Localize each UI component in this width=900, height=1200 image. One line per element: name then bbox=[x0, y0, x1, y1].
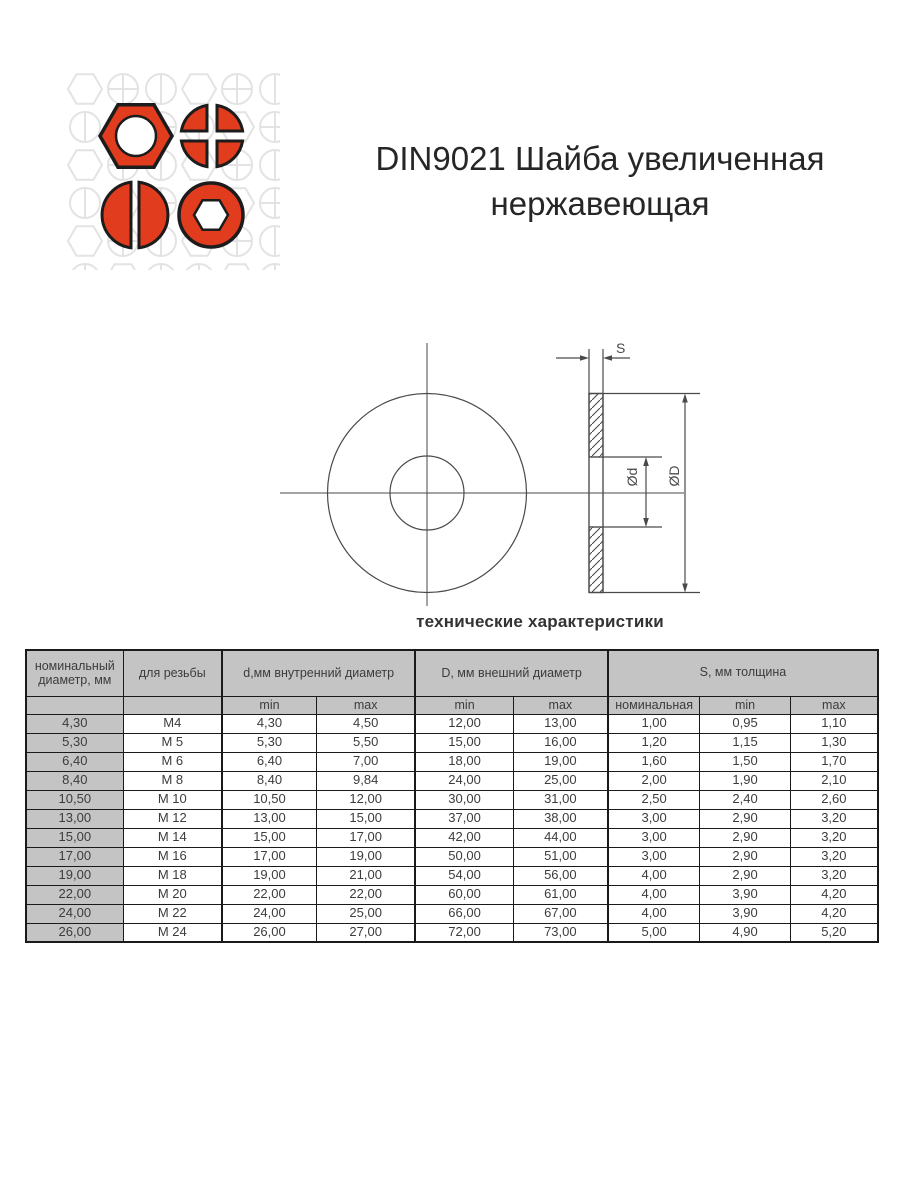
table-cell: 19,00 bbox=[222, 866, 317, 885]
table-cell: 22,00 bbox=[26, 885, 123, 904]
table-cell: 2,90 bbox=[700, 809, 790, 828]
header-empty-cell bbox=[123, 696, 222, 714]
table-row: 13,00M 1213,0015,0037,0038,003,002,903,2… bbox=[26, 809, 878, 828]
header-empty-cell bbox=[26, 696, 123, 714]
brand-logo bbox=[66, 70, 280, 270]
table-cell: 4,00 bbox=[608, 885, 700, 904]
table-cell: 13,00 bbox=[26, 809, 123, 828]
table-cell: 6,40 bbox=[222, 752, 317, 771]
d-arrow-top bbox=[643, 457, 649, 466]
table-cell: 2,40 bbox=[700, 790, 790, 809]
product-title-line2: нержавеющая bbox=[320, 181, 880, 226]
table-cell: 3,20 bbox=[790, 828, 878, 847]
table-cell: 3,20 bbox=[790, 847, 878, 866]
table-cell: 1,30 bbox=[790, 733, 878, 752]
header-d-max: max bbox=[317, 696, 416, 714]
table-cell: 3,20 bbox=[790, 809, 878, 828]
d-arrow-bottom bbox=[643, 518, 649, 527]
header-S-nominal: номинальная bbox=[608, 696, 700, 714]
table-cell: 4,00 bbox=[608, 866, 700, 885]
header-outer-diameter-group: D, мм внешний диаметр bbox=[415, 650, 608, 696]
spec-table-container: номинальный диаметр, мм для резьбы d,мм … bbox=[25, 649, 879, 943]
product-title-line1: DIN9021 Шайба увеличенная bbox=[320, 136, 880, 181]
table-cell: 2,50 bbox=[608, 790, 700, 809]
spec-table-body: 4,30M44,304,5012,0013,001,000,951,105,30… bbox=[26, 714, 878, 942]
washer-drawing: S Ød ØD bbox=[270, 330, 710, 615]
table-cell: 10,50 bbox=[26, 790, 123, 809]
header-S-max: max bbox=[790, 696, 878, 714]
table-cell: 1,60 bbox=[608, 752, 700, 771]
product-title: DIN9021 Шайба увеличенная нержавеющая bbox=[320, 136, 880, 226]
table-cell: 19,00 bbox=[513, 752, 608, 771]
table-cell: 19,00 bbox=[317, 847, 416, 866]
table-cell: 31,00 bbox=[513, 790, 608, 809]
table-cell: 12,00 bbox=[415, 714, 513, 733]
table-cell: 26,00 bbox=[26, 923, 123, 942]
table-cell: 15,00 bbox=[415, 733, 513, 752]
hex-nut-icon bbox=[100, 105, 172, 167]
table-cell: 56,00 bbox=[513, 866, 608, 885]
header-D-max: max bbox=[513, 696, 608, 714]
table-cell: 21,00 bbox=[317, 866, 416, 885]
table-row: 6,40M 66,407,0018,0019,001,601,501,70 bbox=[26, 752, 878, 771]
header-inner-diameter-group: d,мм внутренний диаметр bbox=[222, 650, 415, 696]
table-row: 19,00M 1819,0021,0054,0056,004,002,903,2… bbox=[26, 866, 878, 885]
table-cell: 15,00 bbox=[222, 828, 317, 847]
page: DIN9021 Шайба увеличенная нержавеющая bbox=[0, 0, 900, 1200]
table-cell: 4,30 bbox=[26, 714, 123, 733]
table-cell: 15,00 bbox=[317, 809, 416, 828]
table-cell: 24,00 bbox=[222, 904, 317, 923]
table-cell: 19,00 bbox=[26, 866, 123, 885]
section-hatch-top bbox=[589, 394, 603, 458]
table-cell: 24,00 bbox=[415, 771, 513, 790]
table-cell: 1,10 bbox=[790, 714, 878, 733]
table-cell: 16,00 bbox=[513, 733, 608, 752]
table-row: 5,30M 55,305,5015,0016,001,201,151,30 bbox=[26, 733, 878, 752]
table-cell: 5,30 bbox=[222, 733, 317, 752]
table-cell: 24,00 bbox=[26, 904, 123, 923]
table-cell: 60,00 bbox=[415, 885, 513, 904]
table-cell: 1,90 bbox=[700, 771, 790, 790]
table-cell: 3,00 bbox=[608, 828, 700, 847]
table-cell: 18,00 bbox=[415, 752, 513, 771]
table-cell: 0,95 bbox=[700, 714, 790, 733]
table-cell: 3,20 bbox=[790, 866, 878, 885]
table-cell: 3,90 bbox=[700, 885, 790, 904]
table-cell: 2,90 bbox=[700, 866, 790, 885]
header-thread: для резьбы bbox=[123, 650, 222, 696]
table-cell: 67,00 bbox=[513, 904, 608, 923]
table-cell: 22,00 bbox=[317, 885, 416, 904]
table-cell: M 24 bbox=[123, 923, 222, 942]
header-d-min: min bbox=[222, 696, 317, 714]
table-cell: 3,00 bbox=[608, 809, 700, 828]
table-cell: 38,00 bbox=[513, 809, 608, 828]
header-S-min: min bbox=[700, 696, 790, 714]
table-cell: 2,10 bbox=[790, 771, 878, 790]
table-cell: 22,00 bbox=[222, 885, 317, 904]
table-cell: 12,00 bbox=[317, 790, 416, 809]
outer-diameter-dimension-label: ØD bbox=[666, 466, 682, 487]
table-cell: 5,50 bbox=[317, 733, 416, 752]
D-arrow-bottom bbox=[682, 584, 688, 593]
table-cell: 8,40 bbox=[26, 771, 123, 790]
table-cell: 2,00 bbox=[608, 771, 700, 790]
table-cell: 72,00 bbox=[415, 923, 513, 942]
table-cell: 17,00 bbox=[317, 828, 416, 847]
table-cell: 44,00 bbox=[513, 828, 608, 847]
table-cell: 3,90 bbox=[700, 904, 790, 923]
table-cell: 6,40 bbox=[26, 752, 123, 771]
table-cell: 5,20 bbox=[790, 923, 878, 942]
table-cell: 4,00 bbox=[608, 904, 700, 923]
table-row: 10,50M 1010,5012,0030,0031,002,502,402,6… bbox=[26, 790, 878, 809]
table-cell: M 6 bbox=[123, 752, 222, 771]
table-cell: 25,00 bbox=[513, 771, 608, 790]
inner-diameter-dimension-label: Ød bbox=[624, 468, 640, 487]
technical-drawing: S Ød ØD bbox=[270, 330, 710, 615]
table-cell: M 12 bbox=[123, 809, 222, 828]
socket-head-icon bbox=[179, 183, 243, 247]
table-cell: 4,50 bbox=[317, 714, 416, 733]
table-cell: M 8 bbox=[123, 771, 222, 790]
table-cell: M 20 bbox=[123, 885, 222, 904]
table-cell: 4,20 bbox=[790, 904, 878, 923]
table-cell: 4,30 bbox=[222, 714, 317, 733]
thickness-dimension-label: S bbox=[616, 340, 625, 356]
table-cell: M4 bbox=[123, 714, 222, 733]
table-cell: 17,00 bbox=[222, 847, 317, 866]
table-row: 17,00M 1617,0019,0050,0051,003,002,903,2… bbox=[26, 847, 878, 866]
table-row: 15,00M 1415,0017,0042,0044,003,002,903,2… bbox=[26, 828, 878, 847]
table-cell: 66,00 bbox=[415, 904, 513, 923]
table-cell: M 5 bbox=[123, 733, 222, 752]
table-cell: 1,70 bbox=[790, 752, 878, 771]
table-cell: 13,00 bbox=[513, 714, 608, 733]
table-cell: 15,00 bbox=[26, 828, 123, 847]
spec-table: номинальный диаметр, мм для резьбы d,мм … bbox=[25, 649, 879, 943]
table-cell: M 16 bbox=[123, 847, 222, 866]
D-arrow-top bbox=[682, 394, 688, 403]
table-cell: 27,00 bbox=[317, 923, 416, 942]
table-row: 4,30M44,304,5012,0013,001,000,951,10 bbox=[26, 714, 878, 733]
table-cell: 4,90 bbox=[700, 923, 790, 942]
table-cell: 30,00 bbox=[415, 790, 513, 809]
table-cell: 8,40 bbox=[222, 771, 317, 790]
table-cell: M 14 bbox=[123, 828, 222, 847]
table-row: 26,00M 2426,0027,0072,0073,005,004,905,2… bbox=[26, 923, 878, 942]
table-cell: 37,00 bbox=[415, 809, 513, 828]
header-D-min: min bbox=[415, 696, 513, 714]
table-cell: 10,50 bbox=[222, 790, 317, 809]
table-row: 8,40M 88,409,8424,0025,002,001,902,10 bbox=[26, 771, 878, 790]
table-cell: 1,20 bbox=[608, 733, 700, 752]
table-cell: 42,00 bbox=[415, 828, 513, 847]
header-thickness-group: S, мм толщина bbox=[608, 650, 878, 696]
table-cell: 13,00 bbox=[222, 809, 317, 828]
section-hatch-bottom bbox=[589, 527, 603, 593]
table-cell: 51,00 bbox=[513, 847, 608, 866]
table-cell: 61,00 bbox=[513, 885, 608, 904]
table-cell: 5,30 bbox=[26, 733, 123, 752]
table-cell: M 22 bbox=[123, 904, 222, 923]
table-row: 24,00M 2224,0025,0066,0067,004,003,904,2… bbox=[26, 904, 878, 923]
table-cell: 1,15 bbox=[700, 733, 790, 752]
s-arrow-left bbox=[580, 355, 589, 361]
table-cell: 1,50 bbox=[700, 752, 790, 771]
table-cell: 73,00 bbox=[513, 923, 608, 942]
table-cell: 2,90 bbox=[700, 847, 790, 866]
table-row: 22,00M 2022,0022,0060,0061,004,003,904,2… bbox=[26, 885, 878, 904]
s-arrow-right bbox=[603, 355, 612, 361]
table-cell: 5,00 bbox=[608, 923, 700, 942]
table-cell: 2,90 bbox=[700, 828, 790, 847]
header-nominal-diameter: номинальный диаметр, мм bbox=[26, 650, 123, 696]
table-cell: 7,00 bbox=[317, 752, 416, 771]
table-cell: 26,00 bbox=[222, 923, 317, 942]
brand-logo-graphic bbox=[66, 70, 280, 270]
table-cell: 54,00 bbox=[415, 866, 513, 885]
table-cell: 4,20 bbox=[790, 885, 878, 904]
table-caption: технические характеристики bbox=[190, 612, 890, 632]
table-cell: M 18 bbox=[123, 866, 222, 885]
table-cell: 25,00 bbox=[317, 904, 416, 923]
table-cell: 17,00 bbox=[26, 847, 123, 866]
table-cell: 9,84 bbox=[317, 771, 416, 790]
table-cell: 3,00 bbox=[608, 847, 700, 866]
table-cell: 50,00 bbox=[415, 847, 513, 866]
table-cell: 2,60 bbox=[790, 790, 878, 809]
fastener-pattern-background bbox=[66, 72, 280, 270]
table-cell: 1,00 bbox=[608, 714, 700, 733]
table-cell: M 10 bbox=[123, 790, 222, 809]
